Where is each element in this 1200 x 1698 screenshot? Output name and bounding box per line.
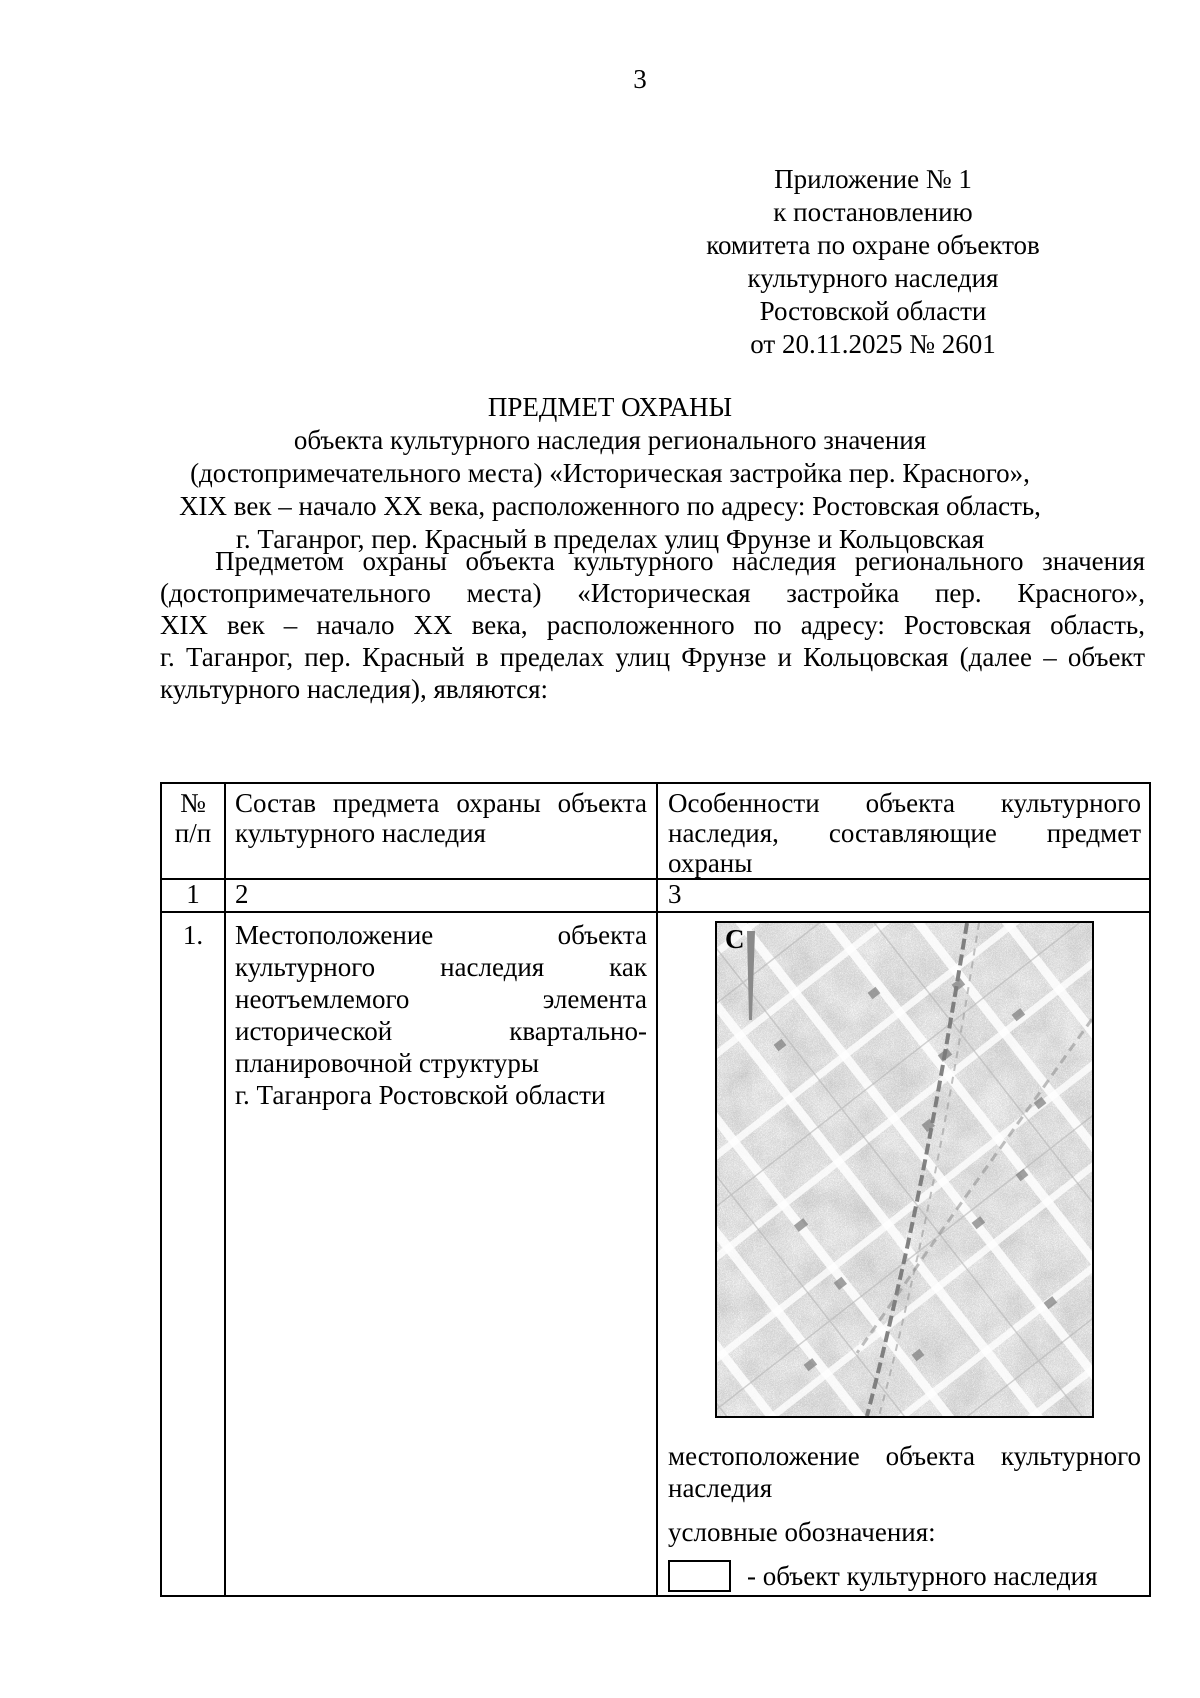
- map-image: С: [715, 921, 1094, 1418]
- header-features-line: охраны: [668, 848, 1141, 878]
- legend-item: - объект культурного наследия: [668, 1560, 1141, 1592]
- table-header-row: № п/п Состав предмета охраны объекта кул…: [161, 783, 1150, 879]
- annex-line: Приложение № 1: [703, 163, 1043, 196]
- intro-line: Предметом охраны объекта культурного нас…: [160, 545, 1145, 577]
- numbering-cell: 3: [657, 879, 1150, 912]
- annex-line: культурного наследия: [703, 262, 1043, 295]
- header-composition-text: Состав предмета охраны объекта культурно…: [226, 784, 656, 848]
- protection-subject-table: № п/п Состав предмета охраны объекта кул…: [160, 782, 1151, 1597]
- row-number-cell: 1.: [161, 912, 225, 1596]
- header-features-line: Особенности объекта культурного: [668, 788, 1141, 818]
- legend-swatch: [668, 1560, 731, 1592]
- header-number-line: №: [162, 788, 224, 818]
- composition-line: Местоположение объекта: [235, 919, 647, 951]
- header-cell-number: № п/п: [161, 783, 225, 879]
- map-caption: местоположение объекта культурного насле…: [668, 1440, 1141, 1504]
- intro-line: культурного наследия), являются:: [160, 673, 1145, 705]
- annex-line: комитета по охране объектов: [703, 229, 1043, 262]
- header-cell-features: Особенности объекта культурного наследия…: [657, 783, 1150, 879]
- annex-line: к постановлению: [703, 196, 1043, 229]
- composition-line: неотъемлемого элемента: [235, 983, 647, 1015]
- satellite-map-graphic: [717, 923, 1092, 1416]
- intro-line: XIX век – начало XX века, расположенного…: [160, 609, 1145, 641]
- composition-line: г. Таганрога Ростовской области: [235, 1079, 647, 1111]
- intro-paragraph: Предметом охраны объекта культурного нас…: [160, 545, 1145, 705]
- header-number-line: п/п: [162, 818, 224, 848]
- table-row: 1. Местоположение объекта культурного на…: [161, 912, 1150, 1596]
- annex-header-block: Приложение № 1 к постановлению комитета …: [703, 163, 1043, 361]
- title-line: объекта культурного наследия регионально…: [160, 424, 1060, 457]
- numbering-text: 3: [658, 880, 1149, 909]
- title-line: XIX век – начало XX века, расположенного…: [160, 490, 1060, 523]
- features-cell: С: [657, 912, 1150, 1596]
- composition-line: планировочной структуры: [235, 1047, 647, 1079]
- title-line: ПРЕДМЕТ ОХРАНЫ: [160, 391, 1060, 424]
- map-caption-line: местоположение объекта культурного: [668, 1440, 1141, 1472]
- north-label: С: [725, 924, 745, 955]
- legend-item-label: - объект культурного наследия: [747, 1560, 1098, 1592]
- composition-line: культурного наследия как: [235, 951, 647, 983]
- title-line: (достопримечательного места) «Историческ…: [160, 457, 1060, 490]
- column-numbering-row: 1 2 3: [161, 879, 1150, 912]
- annex-line: от 20.11.2025 № 2601: [703, 328, 1043, 361]
- map-caption-line: наследия: [668, 1472, 1141, 1504]
- composition-line: исторической квартально-: [235, 1015, 647, 1047]
- numbering-text: 2: [226, 880, 656, 909]
- row-number: 1.: [162, 913, 224, 951]
- intro-line: г. Таганрог, пер. Красный в пределах ули…: [160, 641, 1145, 673]
- page-number: 3: [560, 64, 720, 95]
- numbering-cell: 2: [225, 879, 657, 912]
- numbering-cell: 1: [161, 879, 225, 912]
- composition-cell: Местоположение объекта культурного насле…: [225, 912, 657, 1596]
- header-cell-composition: Состав предмета охраны объекта культурно…: [225, 783, 657, 879]
- document-title: ПРЕДМЕТ ОХРАНЫ объекта культурного насле…: [160, 391, 1060, 556]
- annex-line: Ростовской области: [703, 295, 1043, 328]
- header-features-line: наследия, составляющие предмет: [668, 818, 1141, 848]
- intro-line: (достопримечательного места) «Историческ…: [160, 577, 1145, 609]
- document-page: 3 Приложение № 1 к постановлению комитет…: [0, 0, 1200, 1698]
- legend-title: условные обозначения:: [668, 1516, 1141, 1548]
